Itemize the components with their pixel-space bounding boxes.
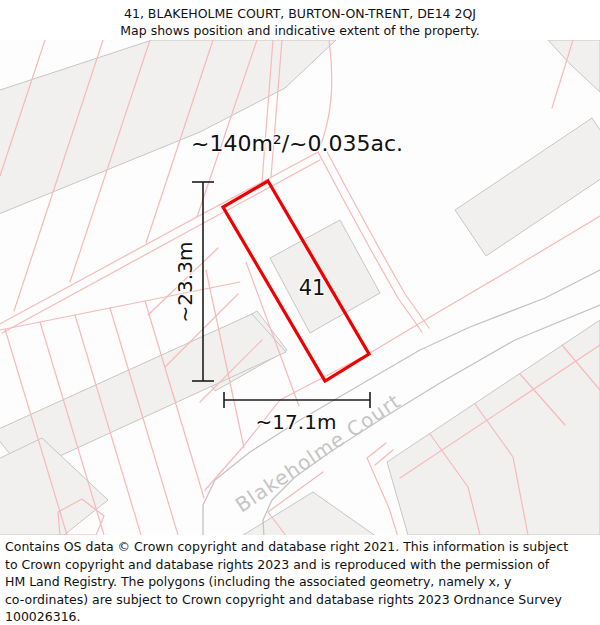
- horizontal-dimension-label: ~17.1m: [256, 410, 337, 434]
- footer-copyright: Contains OS data © Crown copyright and d…: [0, 536, 600, 625]
- header: 41, BLAKEHOLME COURT, BURTON-ON-TRENT, D…: [0, 0, 600, 40]
- area-label: ~140m²/~0.035ac.: [191, 131, 403, 156]
- map-canvas: ~140m²/~0.035ac. 41 ~23.3m ~17.1m Blakeh…: [0, 40, 600, 535]
- page-title: 41, BLAKEHOLME COURT, BURTON-ON-TRENT, D…: [0, 5, 600, 22]
- vertical-dimension-label: ~23.3m: [173, 242, 197, 323]
- plot-number-label: 41: [299, 276, 326, 300]
- page-subtitle: Map shows position and indicative extent…: [0, 22, 600, 39]
